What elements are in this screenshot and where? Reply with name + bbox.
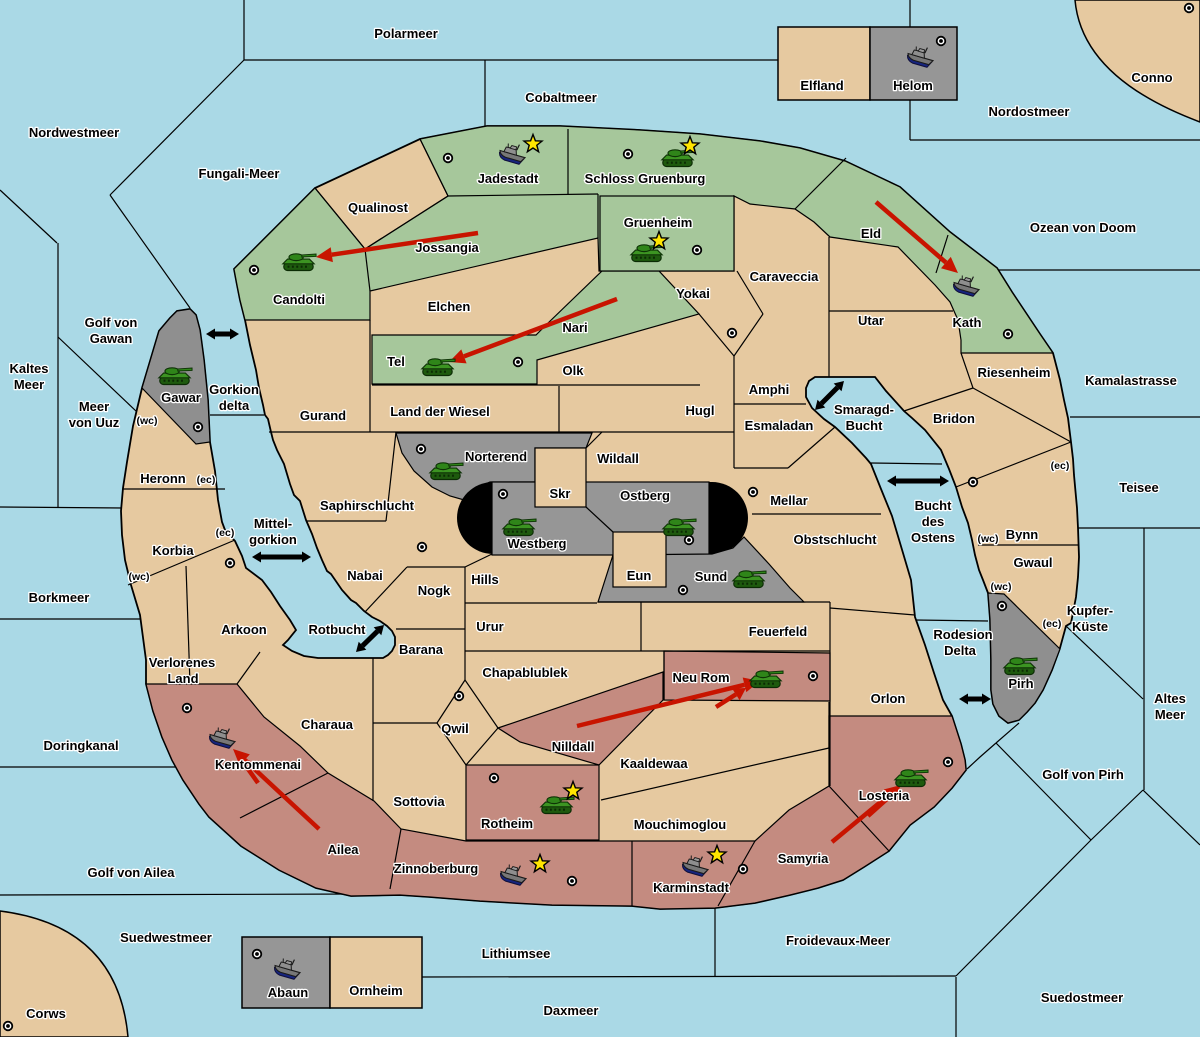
svg-text:Samyria: Samyria [778, 851, 829, 866]
svg-text:Elfland: Elfland [800, 78, 843, 93]
svg-text:Ostens: Ostens [911, 530, 955, 545]
svg-text:Rotbucht: Rotbucht [308, 622, 366, 637]
svg-text:Korbia: Korbia [152, 543, 194, 558]
svg-text:Jadestadt: Jadestadt [478, 171, 539, 186]
svg-text:Elchen: Elchen [428, 299, 471, 314]
svg-text:Nogk: Nogk [418, 583, 451, 598]
svg-text:Smaragd-: Smaragd- [834, 402, 894, 417]
svg-text:Eld: Eld [861, 226, 881, 241]
svg-text:Arkoon: Arkoon [221, 622, 267, 637]
svg-text:gorkion: gorkion [249, 532, 297, 547]
svg-text:Westberg: Westberg [508, 536, 567, 551]
svg-text:Chapablublek: Chapablublek [482, 665, 568, 680]
svg-text:Karminstadt: Karminstadt [653, 880, 730, 895]
svg-text:Golf von Ailea: Golf von Ailea [88, 865, 176, 880]
svg-text:Daxmeer: Daxmeer [544, 1003, 599, 1018]
svg-text:Lithiumsee: Lithiumsee [482, 946, 551, 961]
svg-text:Nordwestmeer: Nordwestmeer [29, 125, 119, 140]
svg-text:Nordostmeer: Nordostmeer [989, 104, 1070, 119]
svg-text:Olk: Olk [563, 363, 585, 378]
svg-text:Esmaladan: Esmaladan [745, 418, 814, 433]
svg-text:Ornheim: Ornheim [349, 983, 402, 998]
svg-text:Mellar: Mellar [770, 493, 808, 508]
svg-text:Skr: Skr [550, 486, 571, 501]
svg-text:Urur: Urur [476, 619, 503, 634]
svg-text:des: des [922, 514, 944, 529]
svg-text:Utar: Utar [858, 313, 884, 328]
svg-text:Verlorenes: Verlorenes [149, 655, 216, 670]
svg-text:Barana: Barana [399, 642, 444, 657]
svg-text:(wc): (wc) [991, 581, 1012, 593]
svg-text:Suedwestmeer: Suedwestmeer [120, 930, 212, 945]
svg-text:Ozean von Doom: Ozean von Doom [1030, 220, 1136, 235]
svg-text:Yokai: Yokai [676, 286, 710, 301]
svg-text:Hills: Hills [471, 572, 498, 587]
svg-text:Hugl: Hugl [686, 403, 715, 418]
svg-text:Bucht: Bucht [846, 418, 884, 433]
svg-text:Qwil: Qwil [441, 721, 468, 736]
svg-text:(ec): (ec) [197, 474, 216, 486]
svg-text:Kentommenai: Kentommenai [215, 757, 301, 772]
svg-text:Gurand: Gurand [300, 408, 346, 423]
svg-text:Tel: Tel [387, 354, 405, 369]
svg-text:Froidevaux-Meer: Froidevaux-Meer [786, 933, 890, 948]
svg-text:Candolti: Candolti [273, 292, 325, 307]
svg-text:Obstschlucht: Obstschlucht [793, 532, 877, 547]
svg-text:(ec): (ec) [1043, 618, 1062, 630]
svg-text:Wildall: Wildall [597, 451, 639, 466]
svg-text:Polarmeer: Polarmeer [374, 26, 438, 41]
svg-text:Kaaldewaa: Kaaldewaa [620, 756, 688, 771]
svg-text:Kaltes: Kaltes [9, 361, 48, 376]
svg-text:Doringkanal: Doringkanal [43, 738, 118, 753]
svg-text:Nilldall: Nilldall [552, 739, 595, 754]
svg-text:Sottovia: Sottovia [393, 794, 445, 809]
svg-text:Heronn: Heronn [140, 471, 186, 486]
svg-text:(wc): (wc) [129, 571, 150, 583]
svg-text:(ec): (ec) [216, 527, 235, 539]
svg-text:Schloss Gruenburg: Schloss Gruenburg [585, 171, 706, 186]
svg-text:delta: delta [219, 398, 250, 413]
svg-text:Suedostmeer: Suedostmeer [1041, 990, 1123, 1005]
svg-text:Borkmeer: Borkmeer [29, 590, 90, 605]
svg-text:Jossangia: Jossangia [415, 240, 479, 255]
svg-text:Kupfer-: Kupfer- [1067, 603, 1113, 618]
svg-text:Pirh: Pirh [1008, 676, 1033, 691]
svg-text:Bucht: Bucht [915, 498, 953, 513]
svg-text:Ailea: Ailea [327, 842, 359, 857]
svg-text:Neu Rom: Neu Rom [672, 670, 729, 685]
svg-text:Golf von Pirh: Golf von Pirh [1042, 767, 1124, 782]
svg-text:Riesenheim: Riesenheim [978, 365, 1051, 380]
svg-text:Ostberg: Ostberg [620, 488, 670, 503]
svg-text:Gawan: Gawan [90, 331, 133, 346]
svg-text:Gwaul: Gwaul [1013, 555, 1052, 570]
svg-text:Nari: Nari [562, 320, 587, 335]
svg-text:von Uuz: von Uuz [69, 415, 120, 430]
svg-text:Corws: Corws [26, 1006, 66, 1021]
svg-text:(ec): (ec) [1051, 460, 1070, 472]
svg-text:Feuerfeld: Feuerfeld [749, 624, 808, 639]
svg-text:Teisee: Teisee [1119, 480, 1159, 495]
svg-text:Meer: Meer [1155, 707, 1185, 722]
svg-text:Charaua: Charaua [301, 717, 354, 732]
svg-text:Mittel-: Mittel- [254, 516, 292, 531]
svg-text:Meer: Meer [79, 399, 109, 414]
svg-text:Eun: Eun [627, 568, 652, 583]
svg-text:Amphi: Amphi [749, 382, 789, 397]
svg-text:Gruenheim: Gruenheim [624, 215, 693, 230]
svg-text:Delta: Delta [944, 643, 977, 658]
svg-text:Zinnoberburg: Zinnoberburg [394, 861, 479, 876]
svg-text:Rotheim: Rotheim [481, 816, 533, 831]
svg-text:Nabai: Nabai [347, 568, 382, 583]
svg-text:Land: Land [167, 671, 198, 686]
svg-text:Bynn: Bynn [1006, 527, 1039, 542]
svg-text:Land der Wiesel: Land der Wiesel [390, 404, 490, 419]
svg-text:Kamalastrasse: Kamalastrasse [1085, 373, 1177, 388]
svg-text:Fungali-Meer: Fungali-Meer [199, 166, 280, 181]
svg-text:Helom: Helom [893, 78, 933, 93]
svg-text:Altes: Altes [1154, 691, 1186, 706]
svg-text:Saphirschlucht: Saphirschlucht [320, 498, 415, 513]
svg-text:Conno: Conno [1131, 70, 1172, 85]
svg-text:Norterend: Norterend [465, 449, 527, 464]
svg-text:Qualinost: Qualinost [348, 200, 409, 215]
svg-text:Gorkion: Gorkion [209, 382, 259, 397]
svg-text:Abaun: Abaun [268, 985, 309, 1000]
svg-text:Gawar: Gawar [161, 390, 201, 405]
svg-text:Orlon: Orlon [871, 691, 906, 706]
svg-text:Küste: Küste [1072, 619, 1108, 634]
svg-text:Caraveccia: Caraveccia [750, 269, 819, 284]
svg-text:Golf von: Golf von [85, 315, 138, 330]
svg-text:Cobaltmeer: Cobaltmeer [525, 90, 597, 105]
svg-text:Losteria: Losteria [859, 788, 910, 803]
svg-text:Meer: Meer [14, 377, 44, 392]
svg-text:Bridon: Bridon [933, 411, 975, 426]
svg-text:Sund: Sund [695, 569, 728, 584]
svg-text:Kath: Kath [953, 315, 982, 330]
svg-text:(wc): (wc) [137, 415, 158, 427]
svg-text:(wc): (wc) [978, 533, 999, 545]
svg-text:Rodesion: Rodesion [933, 627, 992, 642]
svg-text:Mouchimoglou: Mouchimoglou [634, 817, 726, 832]
